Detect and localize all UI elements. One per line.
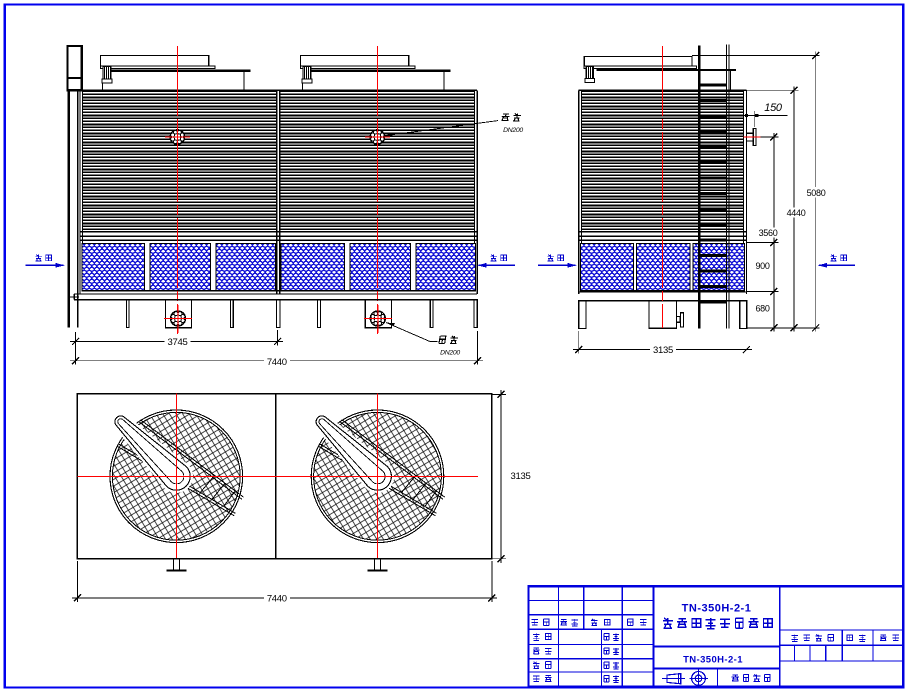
svg-text:150: 150 [764,102,783,114]
svg-text:4440: 4440 [787,208,806,218]
svg-text:TN-350H-2-1: TN-350H-2-1 [683,655,743,666]
svg-text:7440: 7440 [267,594,287,605]
svg-text:DN200: DN200 [503,127,523,134]
svg-text:DN200: DN200 [440,350,460,357]
svg-text:680: 680 [755,304,769,314]
svg-text:3135: 3135 [653,345,673,356]
svg-text:900: 900 [755,261,769,271]
svg-text:3745: 3745 [168,337,188,348]
svg-text:3135: 3135 [511,471,531,482]
svg-text:5080: 5080 [807,188,826,198]
svg-text:7440: 7440 [267,357,287,368]
svg-text:TN-350H-2-1: TN-350H-2-1 [682,603,752,615]
svg-text:3560: 3560 [759,228,778,238]
